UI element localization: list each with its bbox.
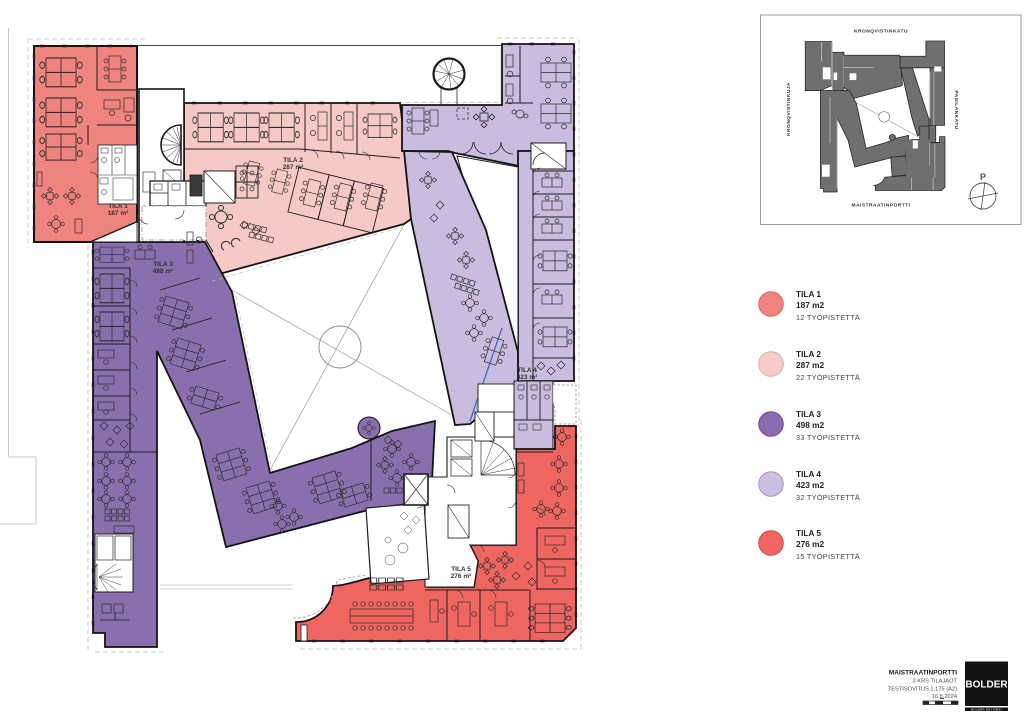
svg-text:BOLDER: BOLDER [965, 680, 1008, 691]
svg-text:KRONQVISTINKATU: KRONQVISTINKATU [854, 29, 908, 35]
svg-text:TILA 4: TILA 4 [517, 367, 537, 374]
svg-text:287 m2: 287 m2 [796, 360, 825, 370]
svg-text:TILA 1: TILA 1 [796, 289, 821, 299]
svg-text:423 m2: 423 m2 [796, 480, 825, 490]
svg-text:MAISTRAATINPORTTI: MAISTRAATINPORTTI [889, 670, 957, 677]
svg-text:MAISTRAATINPORTTI: MAISTRAATINPORTTI [852, 203, 911, 209]
svg-text:187 m²: 187 m² [108, 210, 129, 217]
svg-text:PASILANKATU: PASILANKATU [953, 90, 959, 129]
svg-text:TILA 3: TILA 3 [796, 409, 821, 419]
svg-text:22 TYÖPISTETTÄ: 22 TYÖPISTETTÄ [796, 373, 860, 382]
svg-text:33 TYÖPISTETTÄ: 33 TYÖPISTETTÄ [796, 433, 860, 442]
svg-text:TILA 2: TILA 2 [796, 349, 821, 359]
svg-text:32 TYÖPISTETTÄ: 32 TYÖPISTETTÄ [796, 493, 860, 502]
svg-text:12 TYÖPISTETTÄ: 12 TYÖPISTETTÄ [796, 313, 860, 322]
svg-text:16.8.2024: 16.8.2024 [932, 694, 957, 700]
svg-text:187 m2: 187 m2 [796, 300, 825, 310]
svg-text:KRONQVISTINKUJA: KRONQVISTINKUJA [786, 82, 792, 136]
svg-text:287 m²: 287 m² [283, 164, 304, 171]
svg-text:TILA 4: TILA 4 [796, 469, 821, 479]
svg-text:TILA 3: TILA 3 [153, 261, 173, 268]
svg-text:276 m2: 276 m2 [796, 539, 825, 549]
svg-text:TILA 2: TILA 2 [283, 157, 303, 164]
svg-text:498 m2: 498 m2 [796, 420, 825, 430]
svg-text:15 TYÖPISTETTÄ: 15 TYÖPISTETTÄ [796, 552, 860, 561]
svg-text:P: P [980, 172, 986, 182]
svg-text:276 m²: 276 m² [451, 573, 472, 580]
svg-text:TESTISOVITUS 1.175 (A2): TESTISOVITUS 1.175 (A2) [888, 687, 957, 693]
svg-text:TILA 5: TILA 5 [796, 528, 821, 538]
svg-text:BOLDER HELSINKI: BOLDER HELSINKI [971, 708, 1002, 712]
svg-text:498 m²: 498 m² [153, 268, 174, 275]
svg-text:3 KRS TILAJAOT: 3 KRS TILAJAOT [913, 679, 958, 685]
svg-text:TILA 5: TILA 5 [451, 566, 471, 573]
svg-text:TILA 1: TILA 1 [108, 203, 128, 210]
svg-text:423 m²: 423 m² [517, 374, 538, 381]
